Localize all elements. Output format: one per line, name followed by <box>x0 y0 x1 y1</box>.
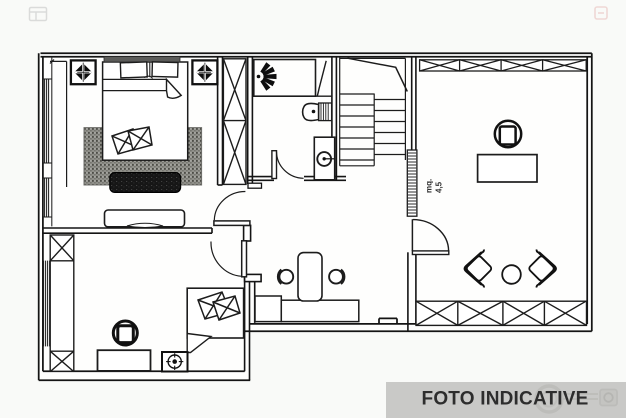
svg-text:4,5: 4,5 <box>435 181 444 193</box>
svg-text:FOTO INDICATIVE: FOTO INDICATIVE <box>422 389 589 410</box>
svg-text:mq.: mq. <box>425 179 434 193</box>
